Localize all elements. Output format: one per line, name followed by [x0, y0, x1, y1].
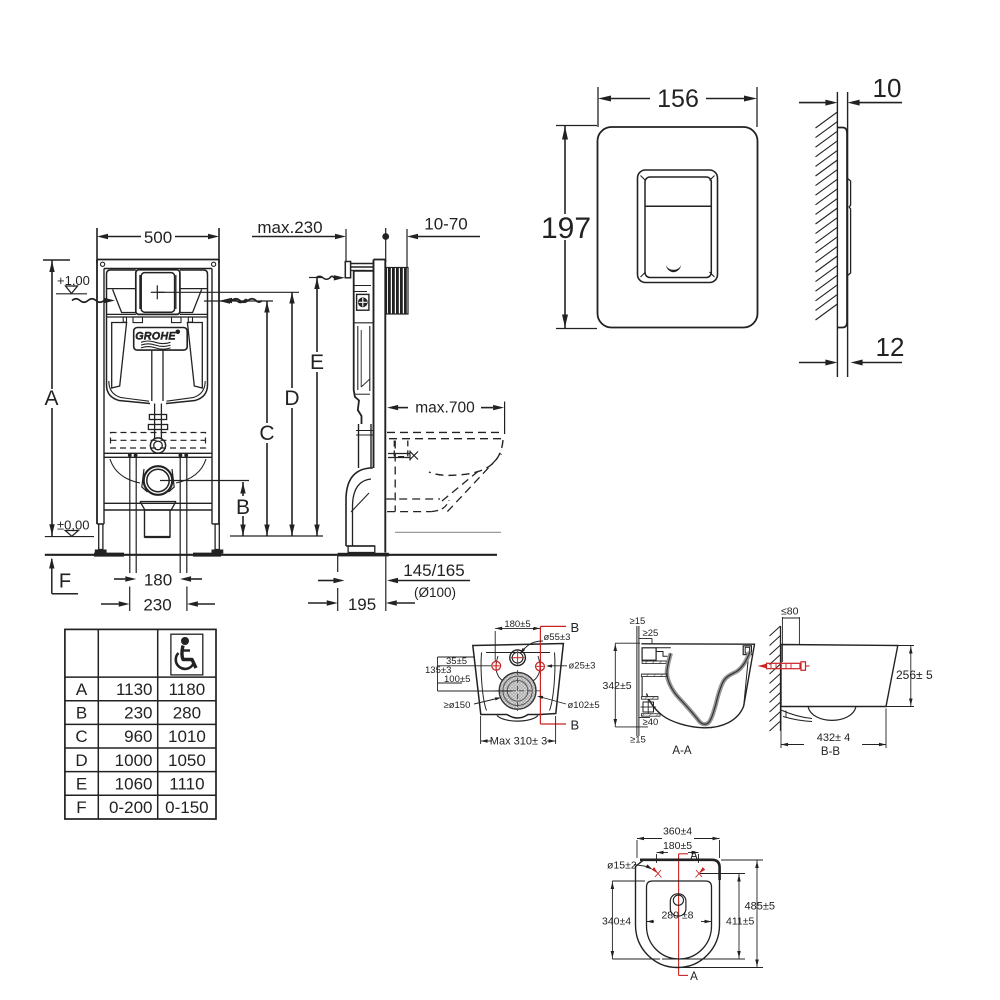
svg-text:D: D — [75, 751, 87, 770]
svg-text:E: E — [310, 351, 324, 374]
svg-text:ø15±2: ø15±2 — [607, 860, 637, 872]
svg-text:12: 12 — [876, 332, 905, 362]
svg-text:E: E — [76, 774, 87, 793]
svg-text:10: 10 — [873, 73, 902, 103]
svg-text:960: 960 — [124, 727, 152, 746]
svg-text:10-70: 10-70 — [424, 215, 467, 234]
svg-text:≥40: ≥40 — [643, 717, 659, 728]
svg-text:180: 180 — [144, 571, 172, 590]
svg-text:F: F — [76, 798, 86, 817]
svg-text:ø55±3: ø55±3 — [544, 632, 571, 643]
svg-text:256± 5: 256± 5 — [896, 668, 933, 682]
svg-text:230: 230 — [124, 704, 152, 723]
svg-text:1000: 1000 — [115, 751, 153, 770]
svg-text:432± 4: 432± 4 — [817, 732, 851, 744]
svg-text:≥ø150: ≥ø150 — [444, 700, 471, 711]
svg-text:1010: 1010 — [168, 727, 206, 746]
svg-text:B: B — [236, 496, 250, 519]
svg-text:D: D — [284, 387, 299, 410]
svg-text:360±4: 360±4 — [663, 826, 692, 838]
svg-text:0-150: 0-150 — [165, 798, 208, 817]
svg-text:156: 156 — [657, 85, 699, 113]
svg-text:A: A — [44, 387, 58, 410]
svg-text:1130: 1130 — [116, 680, 153, 699]
svg-text:B-B: B-B — [821, 746, 841, 758]
svg-text:max.230: max.230 — [257, 218, 322, 237]
svg-text:GROHE: GROHE — [135, 331, 176, 343]
svg-text:C: C — [259, 422, 274, 445]
svg-text:145/165: 145/165 — [403, 561, 464, 580]
svg-text:180±5: 180±5 — [504, 619, 530, 630]
svg-text:340±4: 340±4 — [602, 916, 631, 928]
svg-text:ø102±5: ø102±5 — [568, 700, 600, 711]
svg-text:B: B — [571, 620, 580, 635]
svg-text:230: 230 — [143, 596, 171, 615]
svg-text:A-A: A-A — [672, 745, 692, 757]
svg-text:≤80: ≤80 — [781, 606, 799, 618]
svg-text:F: F — [59, 571, 71, 593]
svg-text:1050: 1050 — [168, 751, 206, 770]
svg-text:180±5: 180±5 — [663, 840, 692, 852]
svg-text:≥25: ≥25 — [643, 628, 659, 639]
svg-text:B: B — [571, 718, 580, 733]
svg-text:1060: 1060 — [115, 774, 153, 793]
svg-text:C: C — [75, 727, 87, 746]
svg-text:A: A — [690, 971, 698, 983]
svg-text:1180: 1180 — [169, 680, 206, 699]
svg-text:280 ±8: 280 ±8 — [661, 910, 693, 922]
svg-text:Max 310± 3: Max 310± 3 — [490, 736, 547, 748]
svg-text:197: 197 — [541, 212, 591, 245]
svg-text:(Ø100): (Ø100) — [414, 585, 456, 600]
svg-text:B: B — [76, 704, 87, 723]
svg-text:0-200: 0-200 — [109, 798, 152, 817]
svg-text:≥15: ≥15 — [630, 616, 646, 627]
svg-text:max.700: max.700 — [415, 400, 475, 417]
svg-text:1110: 1110 — [169, 774, 204, 793]
svg-text:485±5: 485±5 — [745, 901, 776, 913]
svg-text:A: A — [76, 680, 88, 699]
svg-text:500: 500 — [144, 228, 172, 247]
svg-text:411±5: 411±5 — [726, 916, 755, 928]
svg-text:195: 195 — [348, 595, 376, 614]
svg-text:≥15: ≥15 — [630, 735, 646, 746]
svg-text:ø25±3: ø25±3 — [569, 661, 596, 672]
svg-text:280: 280 — [173, 704, 201, 723]
svg-text:342±5: 342±5 — [603, 680, 632, 692]
